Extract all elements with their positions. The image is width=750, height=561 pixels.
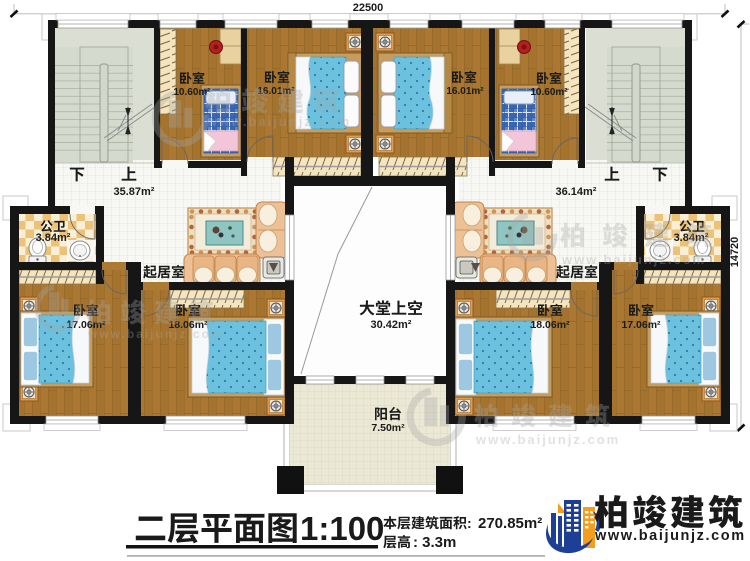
svg-text:270.85m²: 270.85m² [478,515,542,532]
svg-text::: : [467,515,472,531]
svg-text:: 3.3m: : 3.3m [413,534,456,551]
svg-text:1:100: 1:100 [300,510,384,547]
svg-text:35.87m²: 35.87m² [114,186,155,198]
svg-text:www.baijunjz.com: www.baijunjz.com [475,432,620,447]
svg-text:www.baijunjz.com: www.baijunjz.com [206,114,351,129]
svg-text:36.14m²: 36.14m² [556,186,597,198]
svg-text:10.60m²: 10.60m² [173,87,211,98]
svg-text:10.60m²: 10.60m² [530,87,568,98]
svg-text:www.baijunjz.com: www.baijunjz.com [87,327,224,341]
svg-text:30.42m²: 30.42m² [371,319,412,331]
svg-text:18.06m²: 18.06m² [530,319,570,331]
svg-text:17.06m²: 17.06m² [621,319,661,331]
svg-text:3.84m²: 3.84m² [36,232,71,244]
svg-text:www.baijunjz.com: www.baijunjz.com [561,252,706,267]
svg-text:7.50m²: 7.50m² [371,422,405,434]
svg-text:14720: 14720 [729,237,741,268]
svg-text:22500: 22500 [353,2,384,14]
svg-text:www.baijunjz.com: www.baijunjz.com [594,528,746,544]
svg-text:16.01m²: 16.01m² [446,86,484,97]
